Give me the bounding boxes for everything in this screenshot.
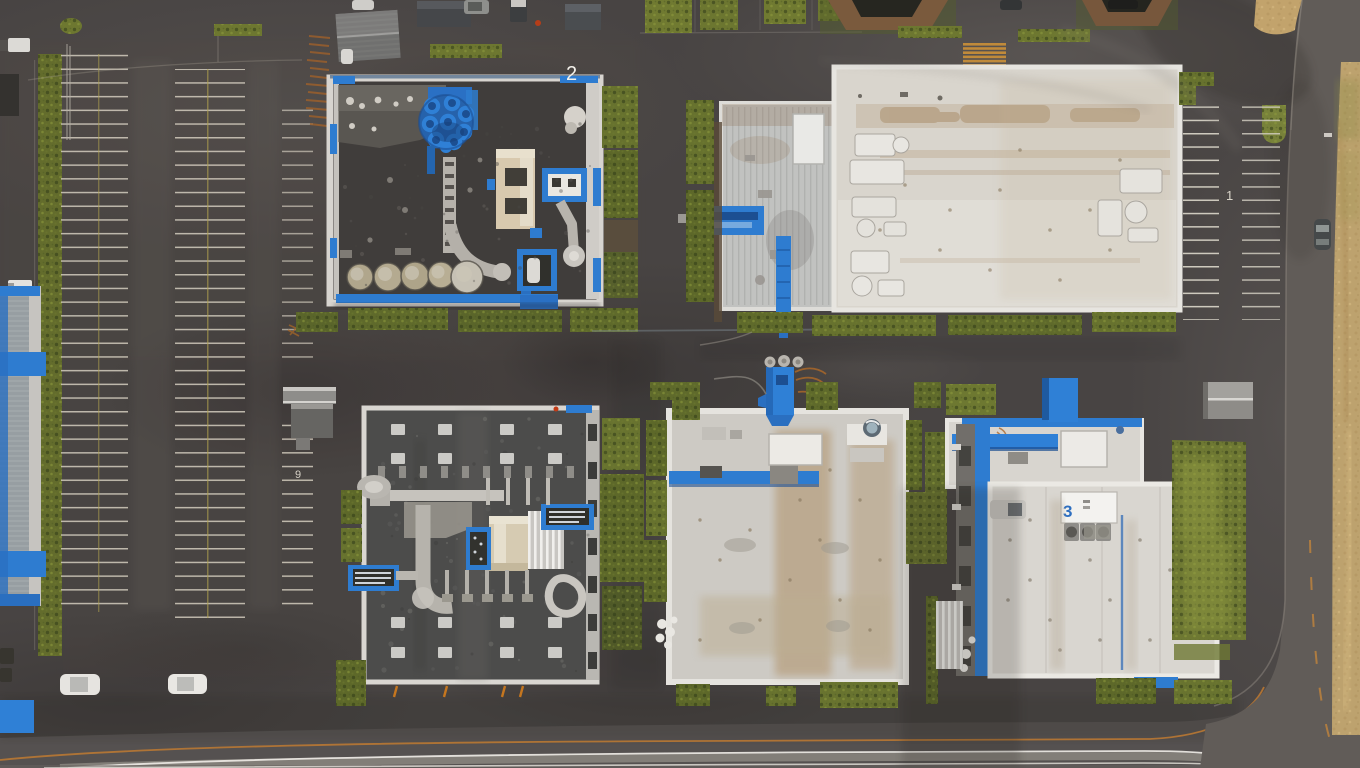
svg-text:2: 2 [566, 63, 577, 85]
svg-text:3: 3 [1063, 502, 1072, 521]
svg-text:9: 9 [295, 469, 301, 481]
svg-text:1: 1 [1226, 188, 1233, 203]
